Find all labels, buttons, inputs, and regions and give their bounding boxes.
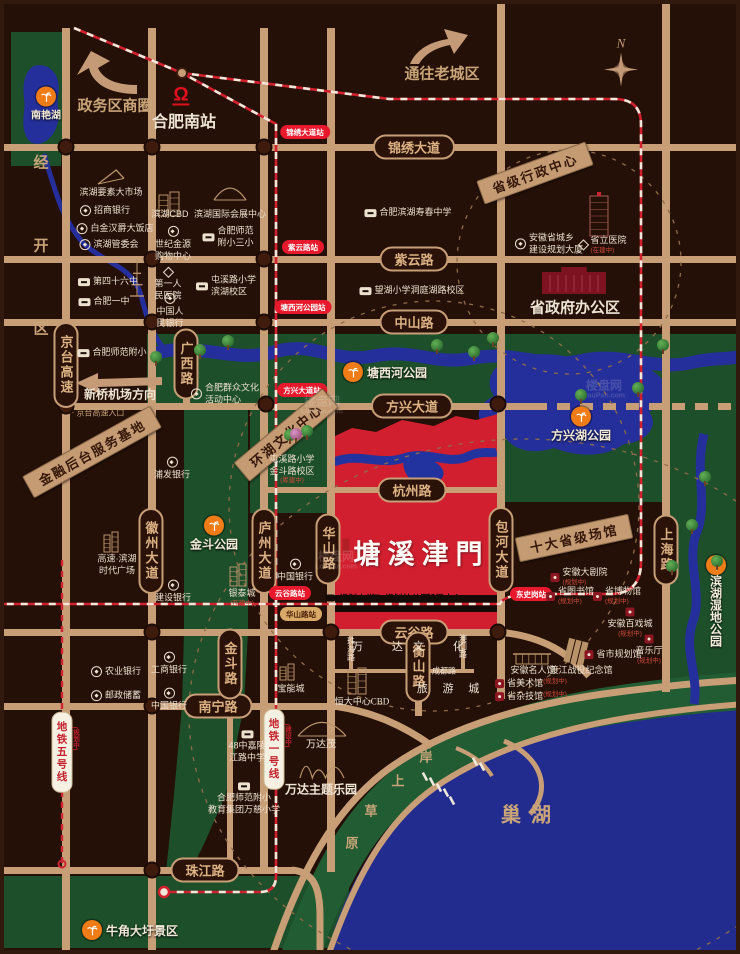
poi-text: 招商银行 xyxy=(94,205,130,217)
poi-text: 省市规划馆 xyxy=(596,649,641,661)
chao-lake-label: 巢湖 xyxy=(501,799,561,828)
poi-text: 安徽百戏城 xyxy=(607,618,652,630)
poi-label: 合肥师范附小教育集团万慈小学 xyxy=(208,782,280,815)
poi-text: 邮政储蓄 xyxy=(105,690,141,702)
bank-icon xyxy=(79,240,90,251)
bank-icon xyxy=(91,691,102,702)
bank-icon xyxy=(91,667,102,678)
road-shanghai-road: 上海路 xyxy=(654,515,679,586)
poi-label: 滨湖CBD xyxy=(151,209,188,221)
area-label: 经开区 xyxy=(30,155,51,404)
school-icon xyxy=(77,349,89,357)
poi-text: 合肥师范附小 xyxy=(217,792,271,804)
poi-label: 工商银行 xyxy=(151,652,187,677)
poi-text: 世纪金源 xyxy=(155,239,191,251)
tree-icon xyxy=(468,346,480,358)
park-marker-icon xyxy=(343,362,363,382)
venue-icon xyxy=(593,592,602,601)
poi-text: 白金汉爵大饭店 xyxy=(90,223,153,235)
tree-icon xyxy=(222,335,234,347)
tree-icon xyxy=(699,471,711,483)
road-zhujiang-road: 珠江路 xyxy=(170,858,239,883)
poi-label: 浦发银行 xyxy=(154,457,190,482)
poi-text: 滨湖校区 xyxy=(211,286,256,298)
watermark-text: 楼盘网 xyxy=(315,551,357,564)
poi-text: (规划中) xyxy=(605,598,641,606)
poi-text: 浦发银行 xyxy=(154,470,190,482)
location-map: 锦绣大道紫云路中山路方兴大道杭州路云谷路南宁路珠江路京台高速广西路徽州大道庐州大… xyxy=(0,0,740,954)
poi-text: 中国人 xyxy=(156,306,183,318)
poi-label: 合肥一中 xyxy=(78,296,129,308)
metro-station-badge: 锦绣大道站 xyxy=(280,125,330,139)
planned-facility-text: 邻里中心 xyxy=(426,592,462,605)
area-label: 省政府办公区 xyxy=(530,297,620,318)
road-fangxing-avenue: 方兴大道 xyxy=(371,394,453,419)
poi-label: 省美术馆(规划中) xyxy=(495,678,567,690)
area-label: 新桥机场方向 xyxy=(84,386,156,403)
tree-icon xyxy=(657,339,669,351)
poi-text: 安徽省城乡 xyxy=(529,232,583,244)
poi-text: (在建中) xyxy=(590,247,626,255)
road-ziyun-road: 紫云路 xyxy=(379,247,448,272)
poi-text: 48中嘉陵 xyxy=(228,740,265,752)
planned-facility-icon xyxy=(370,595,381,602)
area-label: 珠海路 xyxy=(346,637,357,661)
poi-label: 中国银行 xyxy=(277,559,313,584)
poi-label: 安徽大剧院(规划中) xyxy=(550,567,607,587)
jindou-park-marker: 金斗公园 xyxy=(190,516,238,553)
poi-text: 时代广场 xyxy=(99,565,135,577)
tree-icon xyxy=(194,344,206,356)
planned-facility-label: 邻里中心 xyxy=(426,592,462,605)
palm-tree-icon xyxy=(85,924,98,937)
diamond-icon xyxy=(578,239,589,250)
school-icon xyxy=(364,209,376,217)
park-label: 滨湖湿地公园 xyxy=(708,575,725,647)
tree-icon xyxy=(150,351,162,363)
park-label: 牛角大圩景区 xyxy=(106,922,178,939)
poi-text: 滨湖国际会展中心 xyxy=(194,209,266,221)
palm-tree-icon xyxy=(346,366,359,379)
poi-label: 省图书馆(规划中) xyxy=(546,586,594,606)
poi-label: 高速·滨湖时代广场 xyxy=(98,553,137,576)
poi-text: 中国银行 xyxy=(151,701,187,713)
watermark: 楼盘网LouPan.com xyxy=(583,380,625,401)
metro-station-badge: 紫云路站 xyxy=(282,240,324,254)
poi-text: 第一人 xyxy=(154,278,181,290)
poi-text: 省图书馆 xyxy=(558,586,594,598)
metro-line-status: (规划中) xyxy=(70,727,80,751)
venue-icon xyxy=(625,607,634,616)
bank-icon xyxy=(163,652,174,663)
park-marker-icon xyxy=(82,920,102,940)
poi-label: 省市规划馆 xyxy=(584,649,641,661)
poi-label: 滨湖要素大市场 xyxy=(79,187,142,199)
area-label: 万 达 xyxy=(352,638,416,654)
bank-icon xyxy=(191,389,202,400)
tree-icon xyxy=(431,339,443,351)
poi-label: 合肥师范附小 xyxy=(77,347,146,359)
bank-icon xyxy=(164,293,175,304)
poi-text: 购物中心 xyxy=(155,251,191,263)
poi-text: 滨湖CBD xyxy=(151,209,188,221)
venue-icon xyxy=(495,680,504,689)
poi-text: 农业银行 xyxy=(105,666,141,678)
area-label-char: 草 xyxy=(364,801,377,820)
poi-text: (筹建中) xyxy=(280,477,304,485)
nanyan-lake-marker: 南艳湖 xyxy=(31,87,61,122)
school-icon xyxy=(196,282,208,290)
road-baohe-avenue: 包河大道 xyxy=(489,507,514,593)
poi-label: 望湖小学洞庭湖路校区 xyxy=(359,285,464,297)
planned-facility-label: 规划幼儿园 xyxy=(370,592,429,605)
park-marker-icon xyxy=(571,407,591,427)
poi-text: 屯溪路小学 xyxy=(269,454,314,466)
bank-icon xyxy=(80,206,91,217)
fangxinghu-park-marker: 方兴湖公园 xyxy=(551,407,611,444)
poi-text: 省杂技馆 xyxy=(507,691,543,703)
area-label: 旅 游 城 xyxy=(417,680,486,696)
watermark-text: 楼盘网 xyxy=(583,380,625,393)
poi-text: 银泰城 xyxy=(228,588,255,600)
road-zhongshan-road: 中山路 xyxy=(379,310,448,335)
poi-text: 省博物馆 xyxy=(605,586,641,598)
park-label: 金斗公园 xyxy=(190,536,238,553)
poi-label: 渡江战役纪念馆 xyxy=(549,665,612,677)
poi-label: 48中嘉陵江路中学 xyxy=(228,730,265,763)
poi-label: 建设银行 xyxy=(155,580,191,605)
school-icon xyxy=(359,287,371,295)
palm-tree-icon xyxy=(574,410,587,423)
poi-label: 邮政储蓄 xyxy=(91,690,141,702)
poi-label: 安徽省城乡建设规划大厦 xyxy=(515,232,583,255)
planned-facility-text: 规划幼儿园 xyxy=(384,592,429,605)
poi-text: 第四十六中 xyxy=(93,276,138,288)
poi-text: 合肥师范 xyxy=(217,225,253,237)
bank-icon xyxy=(167,580,178,591)
poi-text: 活动中心 xyxy=(205,394,259,406)
poi-text: 省立医院 xyxy=(590,235,626,247)
project-logo-tangxijinmen: 塘溪津門 xyxy=(343,533,490,572)
poi-label: 滨湖国际会展中心 xyxy=(194,209,266,221)
compass: N xyxy=(604,36,638,87)
area-label: 澳门路 xyxy=(458,634,469,658)
poi-text: 安徽大剧院 xyxy=(562,567,607,579)
poi-text: 附小三小 xyxy=(217,237,253,249)
area-label-char: 上 xyxy=(391,771,404,790)
venue-icon xyxy=(644,634,653,643)
poi-label: 省立医院(在建中) xyxy=(579,235,626,255)
watermark-subtext: LouPan.com xyxy=(315,564,357,572)
venue-icon xyxy=(546,592,555,601)
bank-icon xyxy=(163,688,174,699)
road-hangzhou-road: 杭州路 xyxy=(377,478,446,503)
metro-line-1-label: 地铁一号线(建设中) xyxy=(264,709,285,790)
project-name: 塘溪津門 xyxy=(354,533,490,572)
area-label: 成都路 xyxy=(432,666,456,677)
park-label: 方兴湖公园 xyxy=(551,427,611,444)
metro-line-5-label: 地铁五号线(规划中) xyxy=(52,712,73,793)
school-icon xyxy=(78,298,90,306)
park-label: 塘西河公园 xyxy=(367,364,427,381)
poi-text: 工商银行 xyxy=(151,665,187,677)
poi-text: (在建中) xyxy=(230,600,254,608)
road-jinxiu-avenue: 锦绣大道 xyxy=(373,135,455,160)
school-icon xyxy=(238,782,250,790)
metro-line-name: 地铁一号线 xyxy=(268,718,280,781)
poi-label: 白金汉爵大饭店 xyxy=(76,223,153,235)
watermark: 楼盘网LouPan.com xyxy=(301,396,343,417)
poi-text: 屯溪路小学 xyxy=(211,274,256,286)
area-label: 通往老城区 xyxy=(404,63,479,84)
poi-label: 银泰城(在建中) xyxy=(228,588,255,608)
poi-text: 滨湖要素大市场 xyxy=(79,187,142,199)
planned-facility-label: 规划小学 xyxy=(325,592,375,605)
poi-text: (规划中) xyxy=(543,678,567,690)
park-marker-icon xyxy=(204,516,224,536)
poi-text: 民银行 xyxy=(156,318,183,330)
tree-icon xyxy=(632,382,644,394)
bank-icon xyxy=(515,239,526,250)
venue-icon xyxy=(495,693,504,702)
poi-text: 合肥师范附小 xyxy=(92,347,146,359)
poi-label: 合肥群众文化活动中心 xyxy=(191,382,259,405)
poi-label: 合肥滨湖寿春中学 xyxy=(364,207,451,219)
park-label: 南艳湖 xyxy=(31,107,61,122)
poi-text: 合肥一中 xyxy=(93,296,129,308)
bank-icon xyxy=(289,559,300,570)
compass-rose-icon xyxy=(604,53,638,87)
poi-label: 屯溪路小学金斗路校区(筹建中) xyxy=(269,454,314,486)
road-jingtai-expressway: 京台高速 xyxy=(54,322,79,408)
tree-icon xyxy=(711,555,723,567)
road-nanning-road: 南宁路 xyxy=(183,694,252,719)
tree-icon xyxy=(666,560,678,572)
poi-label: 世纪金源购物中心 xyxy=(155,226,191,262)
palm-tree-icon xyxy=(40,90,53,103)
bush-icon xyxy=(290,428,302,440)
park-marker-icon xyxy=(36,87,56,107)
area-label: 万达茂 xyxy=(306,736,336,751)
poi-text: 省美术馆 xyxy=(507,678,543,690)
palm-tree-icon xyxy=(207,519,220,532)
poi-label: 招商银行 xyxy=(80,205,130,217)
poi-text: 金斗路校区 xyxy=(269,466,314,478)
area-label: · 京台高速入口 xyxy=(72,408,125,419)
poi-text: 建设规划大厦 xyxy=(529,244,583,256)
planned-facility-icon xyxy=(325,595,336,602)
poi-label: 合肥师范附小三小 xyxy=(202,225,253,248)
bank-icon xyxy=(167,226,178,237)
poi-text: 望湖小学洞庭湖路校区 xyxy=(374,285,464,297)
poi-label: 第四十六中 xyxy=(78,276,138,288)
diamond-icon xyxy=(162,267,173,278)
venue-icon xyxy=(550,573,559,582)
tree-icon xyxy=(686,519,698,531)
poi-text: (规划中) xyxy=(558,598,594,606)
poi-text: 渡江战役纪念馆 xyxy=(549,665,612,677)
road-luzhou-avenue: 庐州大道 xyxy=(252,508,277,594)
poi-label: 屯溪路小学滨湖校区 xyxy=(196,274,256,297)
tree-icon xyxy=(575,389,587,401)
tree-icon xyxy=(487,332,499,344)
poi-text: (规划中) xyxy=(543,691,567,703)
tree-icon xyxy=(301,425,313,437)
watermark-subtext: LouPan.com xyxy=(583,393,625,401)
watermark: 楼盘网LouPan.com xyxy=(315,551,357,572)
area-label: 恒大中心CBD xyxy=(335,695,390,708)
hefei-south-station-label: 合肥南站 xyxy=(152,108,216,132)
poi-label: 中国人民银行 xyxy=(156,293,183,329)
metro-station-badge: 塘西河公园站 xyxy=(275,300,332,314)
poi-text: 江路中学 xyxy=(229,752,265,764)
road-jindou-road: 金斗路 xyxy=(218,629,243,700)
area-label: 万达主题乐园 xyxy=(285,781,357,798)
poi-label: 省杂技馆(规划中) xyxy=(495,691,567,703)
poi-text: 滨湖管委会 xyxy=(93,239,138,251)
niujiaodaxu-scenic-marker: 牛角大圩景区 xyxy=(82,920,178,940)
watermark-text: 楼盘网 xyxy=(301,396,343,409)
metro-station-badge: 云谷路站 xyxy=(269,586,311,600)
watermark-subtext: LouPan.com xyxy=(301,409,343,417)
school-icon xyxy=(78,278,90,286)
bank-icon xyxy=(166,457,177,468)
area-label-char: 岸 xyxy=(419,747,432,766)
area-label: 政务区商圈 xyxy=(77,95,152,116)
poi-label: 农业银行 xyxy=(91,666,141,678)
poi-label: 滨湖管委会 xyxy=(79,239,138,251)
poi-label: 中国银行 xyxy=(151,688,187,713)
school-icon xyxy=(241,730,253,738)
poi-text: 合肥群众文化 xyxy=(205,382,259,394)
area-label-char: 原 xyxy=(345,833,358,852)
poi-text: 高速·滨湖 xyxy=(98,553,137,565)
poi-text: 教育集团万慈小学 xyxy=(208,804,280,816)
compass-north-label: N xyxy=(617,36,626,52)
area-label: 宝能城 xyxy=(277,682,304,695)
metro-line-status: (建设中) xyxy=(282,724,292,748)
poi-label: 省博物馆(规划中) xyxy=(593,586,641,606)
bank-icon xyxy=(76,224,87,235)
railway-station-icon: Ω xyxy=(172,86,189,105)
poi-text: 中国银行 xyxy=(277,572,313,584)
school-icon xyxy=(202,233,214,241)
poi-text: 合肥滨湖寿春中学 xyxy=(379,207,451,219)
poi-text: 建设银行 xyxy=(155,593,191,605)
metro-line-name: 地铁五号线 xyxy=(56,721,68,784)
metro-station-badge: 华山路站 xyxy=(280,607,322,621)
tangxihe-park-marker: 塘西河公园 xyxy=(343,362,427,382)
venue-icon xyxy=(584,651,593,660)
